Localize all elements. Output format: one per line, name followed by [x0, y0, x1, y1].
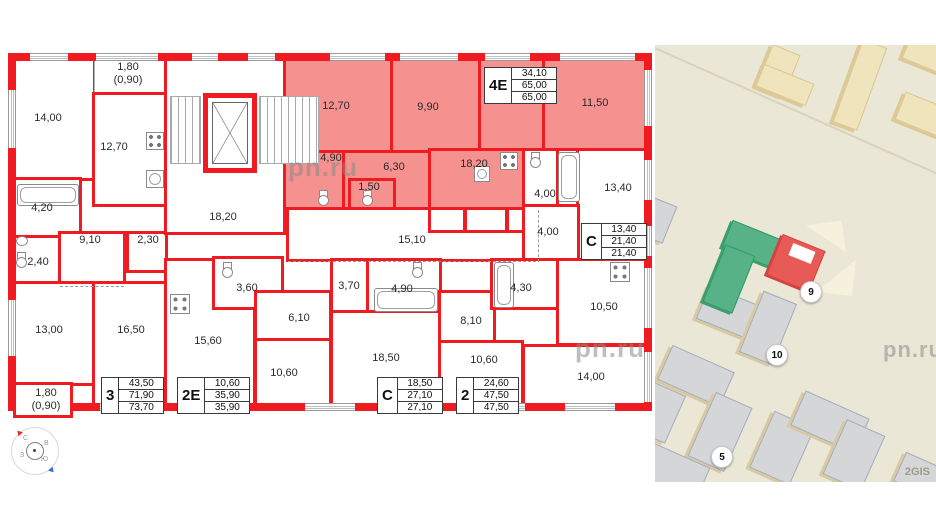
room-label: 2,40 [27, 256, 48, 268]
area: 21,40 [602, 236, 646, 248]
room-label: (0,90) [32, 400, 61, 412]
compass-icon: С В Ю З [11, 427, 59, 475]
window [644, 70, 652, 126]
toilet-icon [16, 252, 27, 268]
window [644, 352, 652, 402]
stove-icon [170, 294, 190, 314]
room-label: 4,90 [391, 283, 412, 295]
toilet-icon [530, 152, 541, 168]
window [644, 268, 652, 328]
stove-icon [500, 152, 518, 170]
total-area: 65,00 [512, 92, 556, 103]
wardrobe-2 [464, 207, 508, 233]
room-label: 10,60 [470, 354, 498, 366]
map-2gis[interactable]: 9 10 5 pn.ru 2GIS [655, 45, 936, 482]
area: 71,90 [119, 390, 163, 402]
room-label: 16,50 [117, 324, 145, 336]
room-label: 11,50 [582, 97, 609, 109]
total-area: 21,40 [602, 248, 646, 259]
room-label: 18,50 [372, 352, 400, 364]
room-label: 1,80 [117, 61, 138, 73]
map-marker-9[interactable]: 9 [800, 281, 822, 303]
room-label: 14,00 [577, 371, 605, 383]
watermark-pnru: pn.ru [288, 152, 358, 183]
map-building [902, 45, 936, 74]
room-label: 18,20 [460, 158, 488, 170]
watermark-pnru: pn.ru [883, 337, 936, 363]
room-label: 3,60 [236, 282, 257, 294]
apartment-id: 2Е [178, 378, 205, 413]
area: 65,00 [512, 80, 556, 92]
room-label: 12,70 [100, 141, 128, 153]
window [96, 53, 158, 61]
watermark-pnru: pn.ru [575, 333, 645, 364]
room-label: 6,30 [383, 161, 404, 173]
window [330, 53, 385, 61]
total-area: 35,90 [205, 402, 249, 413]
map-building [833, 45, 888, 131]
compass-e: В [44, 440, 49, 447]
compass-n: С [23, 435, 28, 442]
room-label: (0,90) [114, 74, 143, 86]
room-label: 8,10 [460, 315, 481, 327]
apartment-plan-page: { "watermark": "pn.ru", "plan": { "room_… [0, 0, 936, 527]
room-label: 4,00 [537, 226, 558, 238]
room-label: 9,10 [79, 234, 100, 246]
apartment-id: 4Е [485, 68, 512, 103]
wardrobe-1 [428, 207, 466, 233]
map-building [655, 382, 686, 443]
living-area: 18,50 [398, 378, 442, 390]
map-credit-2gis: 2GIS [905, 466, 930, 478]
apartment-id: 3 [102, 378, 119, 413]
living-area: 13,40 [602, 224, 646, 236]
room-label: 10,50 [590, 301, 618, 313]
window [644, 160, 652, 200]
room-label: 14,00 [34, 112, 62, 124]
apartment-info-2e[interactable]: 2Е 10,60 35,90 35,90 [177, 377, 250, 414]
toilet-icon [318, 190, 329, 206]
sink-icon [16, 236, 28, 246]
room-label: 3,70 [338, 280, 359, 292]
room-label: 1,80 [35, 387, 56, 399]
total-area: 47,50 [474, 402, 518, 413]
area: 35,90 [205, 390, 249, 402]
compass-s: Ю [41, 456, 48, 463]
apartment-info-studio-2[interactable]: С 13,40 21,40 21,40 [581, 223, 647, 260]
stove-icon [146, 132, 164, 150]
window [565, 403, 615, 411]
room-label: 13,40 [604, 182, 632, 194]
toilet-icon [222, 262, 233, 278]
area: 47,50 [474, 390, 518, 402]
map-building [655, 196, 677, 244]
window [305, 403, 355, 411]
compass-north-tick [15, 429, 23, 437]
map-marker-10[interactable]: 10 [766, 344, 788, 366]
toilet-icon [412, 262, 423, 278]
window [8, 300, 16, 356]
window [8, 90, 16, 148]
washer-icon [146, 170, 164, 188]
room-label: 15,10 [398, 234, 426, 246]
room-label: 4,20 [31, 202, 52, 214]
window [248, 53, 275, 61]
room-label: 10,60 [270, 367, 298, 379]
living-area: 24,60 [474, 378, 518, 390]
apartment-info-studio-1[interactable]: С 18,50 27,10 27,10 [377, 377, 443, 414]
compass-south-tick [48, 467, 56, 475]
total-area: 73,70 [119, 402, 163, 413]
view-cone [816, 256, 856, 296]
map-marker-5[interactable]: 5 [711, 446, 733, 468]
stove-icon [610, 262, 630, 282]
living-area: 34,10 [512, 68, 556, 80]
elevator [203, 93, 257, 173]
window [485, 53, 530, 61]
map-building [895, 91, 936, 142]
room-label: 12,70 [322, 100, 350, 112]
compass-w: З [20, 452, 24, 459]
apartment-info-4e[interactable]: 4Е 34,10 65,00 65,00 [484, 67, 557, 104]
room-label: 6,10 [288, 312, 309, 324]
window [400, 53, 458, 61]
window [30, 53, 68, 61]
room-label: 4,00 [534, 188, 555, 200]
apartment-id: С [378, 378, 398, 413]
room-label: 1,50 [358, 181, 379, 193]
apartment-id: С [582, 224, 602, 259]
apartment-info-2[interactable]: 2 24,60 47,50 47,50 [456, 377, 519, 414]
floor-plan[interactable]: 14,00 1,80 (0,90) 12,70 4,20 2,40 9,10 2… [0, 0, 655, 527]
room-label: 15,60 [194, 335, 222, 347]
total-area: 27,10 [398, 402, 442, 413]
area: 27,10 [398, 390, 442, 402]
bathtub-icon [558, 152, 580, 202]
apartment-info-3[interactable]: 3 43,50 71,90 73,70 [101, 377, 164, 414]
apartment-id: 2 [457, 378, 474, 413]
stairs-left [170, 96, 201, 164]
living-area: 10,60 [205, 378, 249, 390]
room-label: 13,00 [35, 324, 63, 336]
room-label: 4,30 [510, 282, 531, 294]
dashed-opening [60, 286, 124, 287]
room-label: 2,30 [137, 234, 158, 246]
living-area: 43,50 [119, 378, 163, 390]
window [560, 53, 635, 61]
room-label: 9,90 [417, 101, 438, 113]
window [192, 53, 218, 61]
room-label: 18,20 [209, 211, 237, 223]
